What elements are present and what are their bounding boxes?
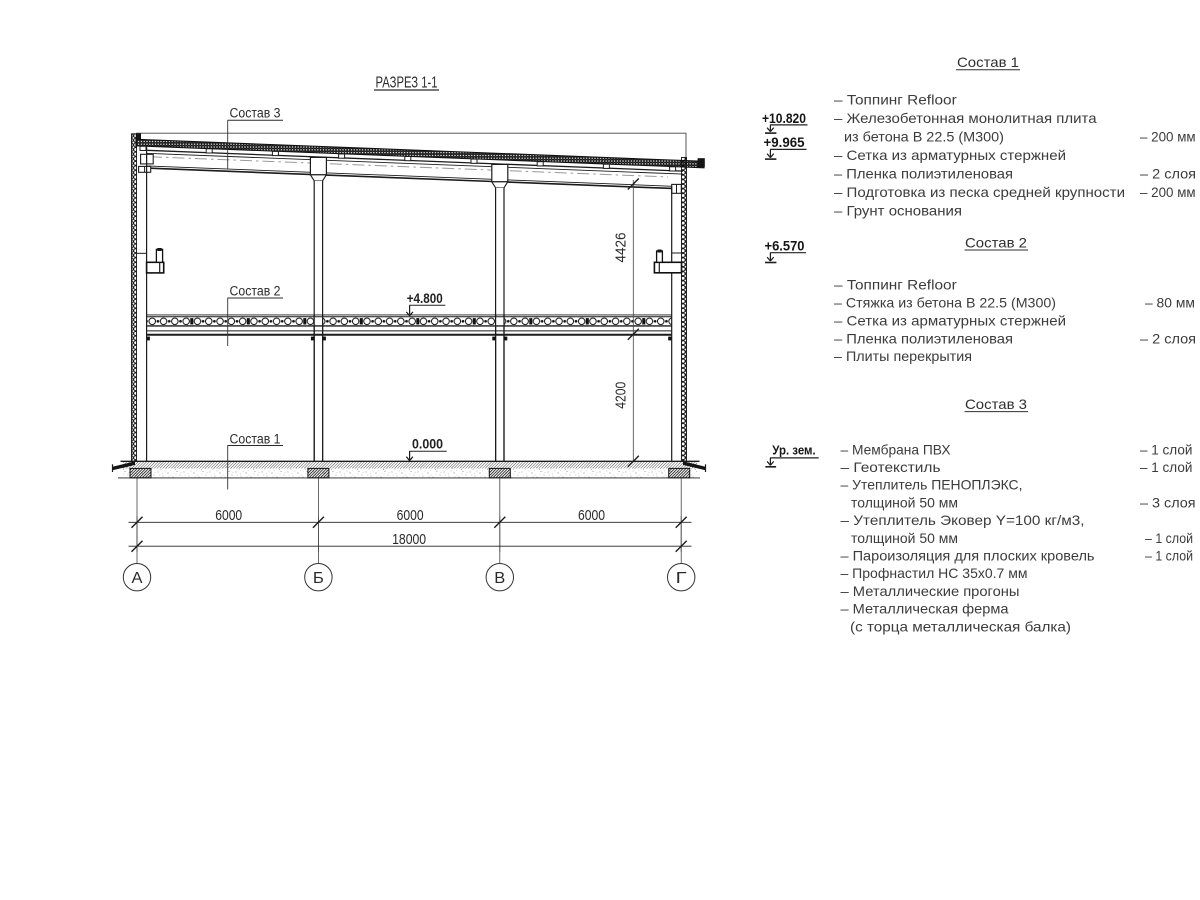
svg-text:6000: 6000 [578, 507, 605, 524]
svg-text:В: В [494, 570, 505, 587]
svg-text:Состав 2: Состав 2 [965, 234, 1027, 250]
svg-text:– Пленка полиэтиленовая: – Пленка полиэтиленовая [834, 330, 1013, 346]
svg-text:– Сетка из арматурных стержней: – Сетка из арматурных стержней [834, 312, 1066, 328]
svg-text:– 200 мм: – 200 мм [1140, 129, 1196, 145]
svg-text:– 1 слой: – 1 слой [1140, 459, 1192, 475]
svg-text:– Пароизоляция для плоских кро: – Пароизоляция для плоских кровель [841, 548, 1095, 564]
svg-text:– Металлическая ферма: – Металлическая ферма [841, 601, 1009, 617]
svg-text:+4.800: +4.800 [407, 290, 443, 306]
svg-text:– Топпинг Refloor: – Топпинг Refloor [834, 277, 957, 293]
svg-text:Состав 3: Состав 3 [230, 105, 281, 120]
svg-text:– Мембрана ПВХ: – Мембрана ПВХ [841, 441, 952, 457]
svg-text:– 1 слой: – 1 слой [1140, 441, 1192, 457]
svg-text:Состав 3: Состав 3 [965, 396, 1027, 412]
svg-text:– Сетка из арматурных стержней: – Сетка из арматурных стержней [834, 147, 1066, 163]
svg-text:А: А [132, 570, 143, 587]
svg-text:0.000: 0.000 [412, 435, 443, 451]
svg-text:Г: Г [676, 570, 687, 587]
svg-text:4426: 4426 [613, 233, 630, 263]
svg-text:– 80 мм: – 80 мм [1145, 294, 1195, 310]
svg-text:– Стяжка из бетона В 22.5 (М30: – Стяжка из бетона В 22.5 (М300) [834, 294, 1056, 310]
svg-text:4200: 4200 [613, 382, 630, 409]
svg-text:(с торца металлическая балка): (с торца металлическая балка) [850, 618, 1071, 634]
svg-text:толщиной 50 мм: толщиной 50 мм [851, 494, 958, 510]
svg-text:– Утеплитель Эковер Y=100 кг/м: – Утеплитель Эковер Y=100 кг/м3, [841, 512, 1085, 528]
svg-text:– Подготовка из песка средней: – Подготовка из песка средней крупности [834, 184, 1125, 200]
svg-text:6000: 6000 [397, 507, 424, 524]
svg-text:– Профнастил НС 35х0.7 мм: – Профнастил НС 35х0.7 мм [841, 565, 1028, 581]
svg-text:+6.570: +6.570 [765, 238, 805, 254]
svg-text:– Пленка полиэтиленовая: – Пленка полиэтиленовая [834, 165, 1013, 181]
svg-text:– 1 слой: – 1 слой [1145, 530, 1193, 546]
svg-text:– 3 слоя: – 3 слоя [1140, 494, 1196, 510]
svg-text:Состав 1: Состав 1 [230, 431, 281, 446]
svg-text:– Железобетонная монолитная п: – Железобетонная монолитная плита [834, 110, 1097, 126]
svg-text:+9.965: +9.965 [764, 134, 805, 150]
svg-text:– Утеплитель ПЕНОПЛЭКС,: – Утеплитель ПЕНОПЛЭКС, [841, 477, 1023, 493]
svg-text:– Геотекстиль: – Геотекстиль [841, 459, 941, 475]
svg-text:РАЗРЕЗ 1-1: РАЗРЕЗ 1-1 [376, 75, 438, 92]
svg-text:Состав 2: Состав 2 [230, 283, 281, 298]
svg-text:из бетона В 22.5 (М300): из бетона В 22.5 (М300) [844, 128, 1004, 144]
svg-text:– 2 слоя: – 2 слоя [1140, 330, 1196, 346]
svg-text:– 2 слоя: – 2 слоя [1140, 165, 1196, 181]
svg-text:– 200 мм: – 200 мм [1140, 184, 1196, 200]
svg-text:+10.820: +10.820 [762, 110, 806, 126]
svg-text:– 1 слой: – 1 слой [1145, 548, 1193, 564]
svg-text:6000: 6000 [215, 507, 242, 524]
svg-text:толщиной 50 мм: толщиной 50 мм [851, 530, 958, 546]
svg-text:Б: Б [313, 570, 324, 587]
svg-text:Состав 1: Состав 1 [957, 54, 1019, 70]
svg-text:– Металлические прогоны: – Металлические прогоны [841, 583, 1020, 599]
svg-text:– Плиты перекрытия: – Плиты перекрытия [834, 348, 972, 364]
svg-text:18000: 18000 [392, 531, 426, 548]
svg-text:– Грунт основания: – Грунт основания [834, 202, 962, 218]
svg-text:– Топпинг Refloor: – Топпинг Refloor [834, 92, 957, 108]
svg-text:Ур. зем.: Ур. зем. [772, 443, 815, 458]
